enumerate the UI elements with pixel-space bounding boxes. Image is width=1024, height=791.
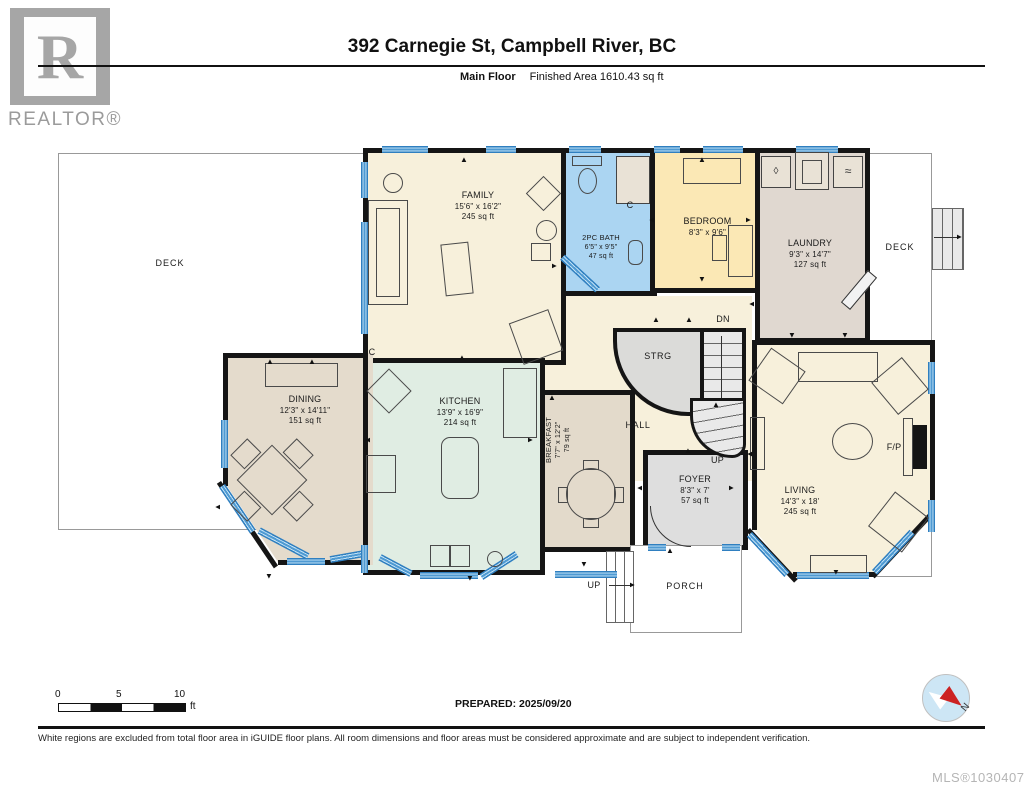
door-arrow-icon: ▲ [666, 547, 674, 555]
floor-plan-page: R REALTOR® 392 Carnegie St, Campbell Riv… [0, 0, 1024, 791]
finished-area-label: Finished Area 1610.43 sq ft [530, 71, 664, 83]
closet-label: C [622, 200, 638, 212]
door-arrow-icon: ▲ [265, 572, 273, 580]
door-arrow-icon: ▲ [832, 568, 840, 576]
window [382, 146, 428, 153]
bath-closet [616, 156, 650, 204]
stairs-up-label: UP [700, 455, 735, 467]
laundry-sink-basin-outline [802, 160, 822, 184]
family-label: FAMILY 15'6" x 16'2" 245 sq ft [408, 190, 548, 222]
door-arrow-icon: ▲ [684, 447, 692, 455]
door-arrow-icon: ▲ [841, 331, 849, 339]
porch-label: PORCH [645, 581, 725, 593]
kitchen-island-outline [441, 437, 479, 499]
door-arrow-icon: ▲ [526, 436, 534, 444]
window [654, 146, 680, 153]
scale-tick-5: 5 [116, 689, 122, 700]
disclaimer-text: White regions are excluded from total fl… [38, 733, 828, 744]
breakfast-chair-outline [583, 518, 599, 528]
door-arrow-icon: ▲ [550, 262, 558, 270]
plant-outline [383, 173, 403, 193]
window [928, 500, 935, 532]
breakfast-chair-outline [614, 487, 624, 503]
window [722, 544, 740, 551]
dining-label: DINING 12'3" x 14'11" 151 sq ft [245, 394, 365, 426]
dryer-icon: ≈ [833, 156, 863, 188]
desk-chair-outline [712, 235, 727, 261]
stairs-up-arrow-icon: ▲ [712, 401, 720, 409]
coffee-table-outline [440, 242, 473, 297]
chair-outline [536, 220, 557, 241]
washer-icon: ◊ [761, 156, 791, 188]
window [361, 545, 368, 573]
stairs-down-label: DN [708, 314, 738, 326]
toilet-tank-outline [572, 156, 602, 166]
storage-label: STRG [628, 351, 688, 363]
living-wall-top [752, 340, 935, 345]
porch-stairs-up-label: UP [583, 580, 605, 592]
breakfast-table-outline [566, 468, 616, 520]
floor-label: Main Floor [460, 71, 516, 83]
kitchen-sink-left-outline [430, 545, 450, 567]
door-arrow-icon: ▲ [364, 436, 372, 444]
deck-stairs-arrow-icon: ▲ [955, 233, 963, 241]
bath-label: 2PC BATH 6'5" x 9'5" 47 sq ft [562, 233, 640, 261]
door-arrow-icon: ▲ [788, 331, 796, 339]
living-console-outline [750, 417, 765, 470]
door-arrow-icon: ▲ [652, 316, 660, 324]
fireplace-label: F/P [882, 442, 906, 454]
window [555, 571, 617, 578]
compass-icon [922, 674, 970, 722]
door-arrow-icon: ▲ [580, 560, 588, 568]
window [648, 544, 666, 551]
window [928, 362, 935, 394]
floor-subtitle: Main FloorFinished Area 1610.43 sq ft [460, 71, 664, 83]
footer-rule [38, 726, 985, 729]
deck-left-label: DECK [125, 258, 215, 270]
fireplace-box [913, 425, 927, 469]
window [361, 222, 368, 334]
living-table-outline [832, 423, 873, 460]
kitchen-label: KITCHEN 13'9" x 16'9" 214 sq ft [390, 396, 530, 428]
porch-stairs-arrow-icon: ▲ [628, 581, 636, 589]
cooktop-outline [487, 551, 503, 567]
breakfast-chair-outline [558, 487, 568, 503]
door-arrow-icon: ▲ [266, 358, 274, 366]
door-arrow-icon: ▲ [698, 275, 706, 283]
door-arrow-icon: ▲ [698, 156, 706, 164]
toilet-bowl-outline [578, 168, 597, 194]
page-title: 392 Carnegie St, Campbell River, BC [0, 36, 1024, 58]
dining-wall-top [223, 353, 368, 358]
realtor-wordmark: REALTOR® [8, 109, 122, 131]
door-arrow-icon: ▲ [744, 216, 752, 224]
living-sofa-outline [798, 352, 878, 382]
window [486, 146, 516, 153]
scale-unit: ft [190, 701, 196, 712]
closet-label: C [364, 347, 380, 359]
laundry-label: LAUNDRY 9'3" x 14'7" 127 sq ft [760, 238, 860, 270]
window [287, 558, 325, 565]
deck-right-label: DECK [868, 242, 932, 254]
scale-tick-10: 10 [174, 689, 185, 700]
prepared-date: PREPARED: 2025/09/20 [455, 698, 572, 710]
kitchen-sink-right-outline [450, 545, 470, 567]
door-arrow-icon: ▲ [648, 216, 656, 224]
dresser-outline [683, 158, 741, 184]
living-label: LIVING 14'3" x 18' 245 sq ft [760, 485, 840, 517]
door-arrow-icon: ▲ [748, 300, 756, 308]
mls-number: MLS®1030407 [932, 770, 1024, 785]
bedroom-label: BEDROOM 8'3" x 9'6" [660, 216, 755, 238]
hall-label: HALL [613, 420, 663, 432]
foyer-label: FOYER 8'3" x 7' 57 sq ft [655, 474, 735, 506]
stairs-down-arrow-line [721, 336, 722, 400]
side-table-outline [531, 243, 551, 261]
breakfast-chair-outline [583, 460, 599, 470]
door-arrow-icon: ▲ [460, 156, 468, 164]
sofa-seat-outline [376, 208, 400, 297]
door-arrow-icon: ▲ [548, 394, 556, 402]
door-arrow-icon: ▲ [308, 358, 316, 366]
window [361, 162, 368, 198]
door-arrow-icon: ▲ [466, 574, 474, 582]
door-arrow-icon: ▲ [458, 354, 466, 362]
scale-bar [58, 703, 186, 712]
header-rule [38, 65, 985, 67]
scale-tick-0: 0 [55, 689, 61, 700]
door-arrow-icon: ▲ [214, 503, 222, 511]
breakfast-label: BREAKFAST 7'7" x 12'2" 79 sq ft [544, 395, 572, 485]
sideboard-outline [265, 363, 338, 387]
door-arrow-icon: ▲ [727, 484, 735, 492]
kitchen-counter-left-outline [366, 455, 396, 493]
window [569, 146, 601, 153]
door-arrow-icon: ▲ [746, 450, 754, 458]
door-arrow-icon: ▲ [636, 484, 644, 492]
window [703, 146, 743, 153]
door-arrow-icon: ▲ [685, 316, 693, 324]
